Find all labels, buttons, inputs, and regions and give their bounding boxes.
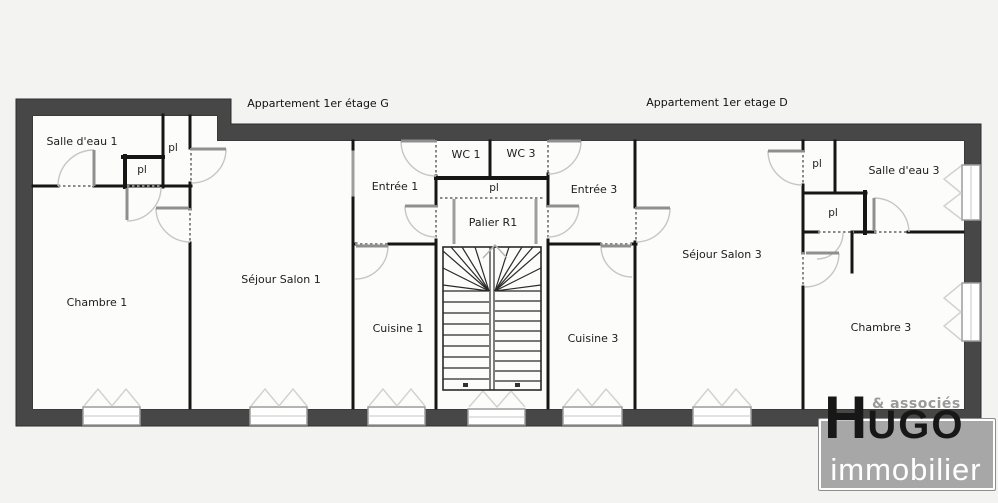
room-label-palier-r1: Palier R1 bbox=[469, 216, 517, 229]
logo-subtitle: immobilier bbox=[820, 452, 992, 488]
floorplan-page: Appartement 1er étage G Appartement 1er … bbox=[0, 0, 998, 503]
room-label-salle-eau-1: Salle d'eau 1 bbox=[46, 135, 117, 148]
room-label-chambre-1: Chambre 1 bbox=[67, 296, 128, 309]
room-label-sejour-salon-1: Séjour Salon 1 bbox=[241, 273, 321, 286]
logo-brand-rest: UGO bbox=[867, 405, 964, 445]
apartment-titles: Appartement 1er étage G Appartement 1er … bbox=[247, 96, 787, 110]
room-label-cuisine-3: Cuisine 3 bbox=[568, 332, 619, 345]
room-label-salle-eau-3: Salle d'eau 3 bbox=[868, 164, 939, 177]
agency-logo: & associés HUGO immobilier bbox=[812, 392, 998, 503]
logo-brand-initial: H bbox=[824, 388, 867, 448]
room-label-cuisine-1: Cuisine 1 bbox=[373, 322, 424, 335]
closet-label-1: pl bbox=[168, 142, 178, 154]
room-label-sejour-salon-3: Séjour Salon 3 bbox=[682, 248, 762, 261]
room-label-wc-3: WC 3 bbox=[506, 147, 535, 160]
room-label-entree-3: Entrée 3 bbox=[571, 183, 618, 196]
closet-label-4: pl bbox=[812, 158, 822, 170]
apartment-g-title: Appartement 1er étage G bbox=[247, 97, 388, 110]
closet-label-3: pl bbox=[489, 182, 499, 194]
logo-brand-name: HUGO bbox=[824, 388, 964, 448]
apartment-d-title: Appartement 1er etage D bbox=[646, 96, 787, 109]
closet-label-5: pl bbox=[828, 207, 838, 219]
room-label-entree-1: Entrée 1 bbox=[372, 180, 419, 193]
room-label-wc-1: WC 1 bbox=[451, 148, 480, 161]
room-label-chambre-3: Chambre 3 bbox=[851, 321, 912, 334]
closet-label-2: pl bbox=[137, 164, 147, 176]
floor-area bbox=[33, 116, 964, 409]
